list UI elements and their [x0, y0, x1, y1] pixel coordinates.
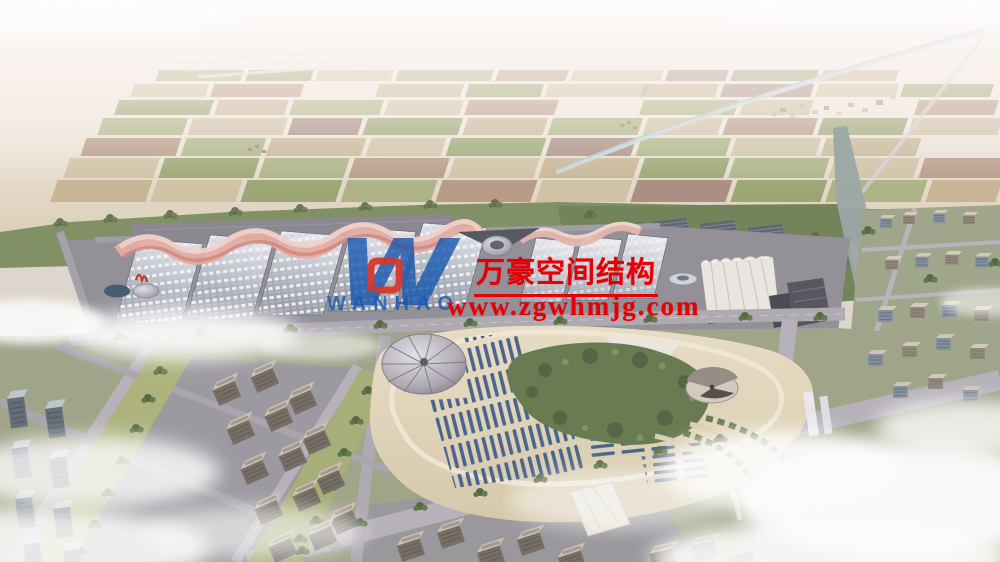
watermark-logo: W	[336, 220, 461, 327]
scene-illustration: W	[0, 0, 1000, 562]
aerial-rendering: W WANHAO 万豪空间结构 www.zgwhmjg.com	[0, 0, 1000, 562]
warm-haze-overlay	[0, 0, 1000, 562]
